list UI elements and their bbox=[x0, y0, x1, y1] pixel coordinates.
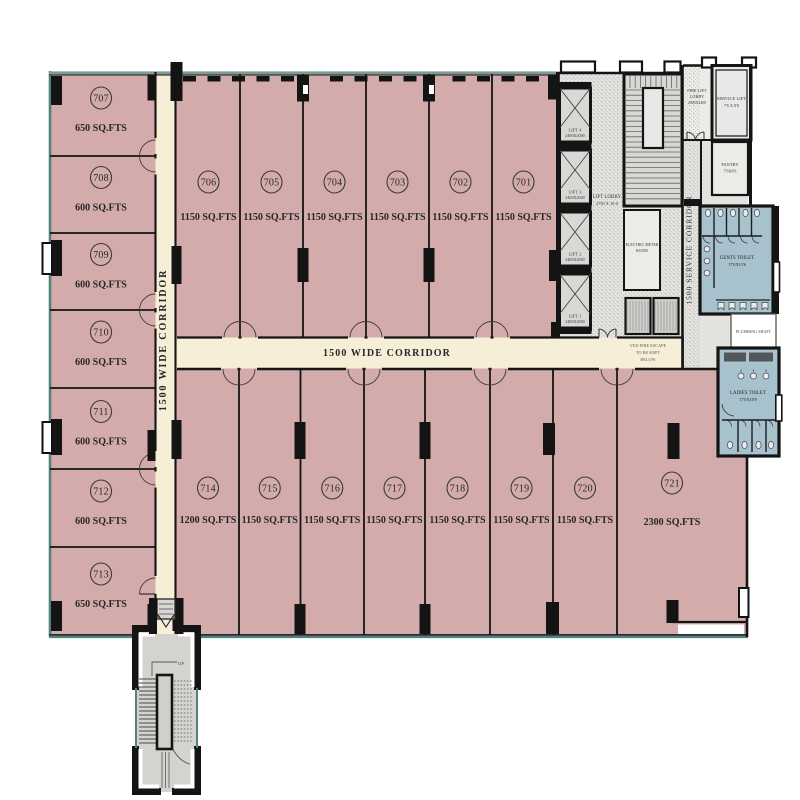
svg-text:713: 713 bbox=[93, 570, 109, 581]
svg-text:BELOW: BELOW bbox=[640, 357, 655, 362]
svg-text:706: 706 bbox=[201, 178, 217, 189]
svg-text:717: 717 bbox=[387, 484, 403, 495]
svg-text:1150 SQ.FTS: 1150 SQ.FTS bbox=[493, 515, 550, 526]
svg-text:LIFT LOBBY: LIFT LOBBY bbox=[593, 195, 622, 200]
svg-text:721: 721 bbox=[664, 479, 680, 490]
svg-text:2400X2000: 2400X2000 bbox=[565, 257, 584, 262]
svg-text:SERVICE LIFT: SERVICE LIFT bbox=[717, 96, 746, 101]
svg-text:7'6X8'6: 7'6X8'6 bbox=[724, 169, 737, 174]
svg-text:650 SQ.FTS: 650 SQ.FTS bbox=[75, 123, 127, 134]
svg-text:600 SQ.FTS: 600 SQ.FTS bbox=[75, 357, 127, 368]
svg-text:710: 710 bbox=[93, 328, 109, 339]
svg-text:LIFT 1: LIFT 1 bbox=[569, 314, 582, 319]
svg-text:718: 718 bbox=[450, 484, 466, 495]
svg-text:1150 SQ.FTS: 1150 SQ.FTS bbox=[557, 515, 614, 526]
svg-text:1150 SQ.FTS: 1150 SQ.FTS bbox=[369, 212, 426, 223]
svg-text:712: 712 bbox=[93, 487, 109, 498]
svg-text:709: 709 bbox=[93, 250, 109, 261]
svg-text:702: 702 bbox=[453, 178, 469, 189]
svg-text:711: 711 bbox=[93, 407, 108, 418]
svg-text:PANTRY: PANTRY bbox=[721, 162, 739, 167]
svg-text:UP: UP bbox=[178, 661, 184, 666]
svg-text:716: 716 bbox=[324, 484, 340, 495]
svg-text:LIFT 4: LIFT 4 bbox=[569, 128, 583, 133]
svg-text:7'6 X 8'0: 7'6 X 8'0 bbox=[724, 103, 739, 108]
svg-text:600 SQ.FTS: 600 SQ.FTS bbox=[75, 203, 127, 214]
svg-text:2750 X 10-0: 2750 X 10-0 bbox=[596, 201, 618, 206]
svg-text:719: 719 bbox=[514, 484, 530, 495]
svg-text:TO BE KEPT: TO BE KEPT bbox=[636, 350, 660, 355]
svg-text:ROOM: ROOM bbox=[636, 249, 648, 253]
svg-text:1500 WIDE CORRIDOR: 1500 WIDE CORRIDOR bbox=[323, 348, 451, 359]
svg-text:2400X2000: 2400X2000 bbox=[565, 133, 584, 138]
svg-text:17'0X13'6: 17'0X13'6 bbox=[728, 262, 746, 267]
svg-text:705: 705 bbox=[264, 178, 280, 189]
svg-text:600 SQ.FTS: 600 SQ.FTS bbox=[75, 437, 127, 448]
svg-text:714: 714 bbox=[200, 484, 216, 495]
svg-text:715: 715 bbox=[262, 484, 278, 495]
svg-text:2400X2000: 2400X2000 bbox=[565, 195, 584, 200]
svg-text:1150 SQ.FTS: 1150 SQ.FTS bbox=[306, 212, 363, 223]
svg-text:PLUMBING SHAFT: PLUMBING SHAFT bbox=[736, 329, 772, 334]
svg-text:2300 SQ.FTS: 2300 SQ.FTS bbox=[644, 517, 701, 528]
svg-text:1150 SQ.FTS: 1150 SQ.FTS bbox=[432, 212, 489, 223]
svg-text:1150 SQ.FTS: 1150 SQ.FTS bbox=[304, 515, 361, 526]
svg-text:1150 SQ.FTS: 1150 SQ.FTS bbox=[243, 212, 300, 223]
svg-text:703: 703 bbox=[390, 178, 406, 189]
svg-text:LOBBY: LOBBY bbox=[690, 94, 705, 99]
svg-text:ELECTRIC METER: ELECTRIC METER bbox=[626, 243, 659, 247]
svg-text:1150 SQ.FTS: 1150 SQ.FTS bbox=[366, 515, 423, 526]
svg-text:600 SQ.FTS: 600 SQ.FTS bbox=[75, 516, 127, 527]
svg-text:VED FIRE ESCAPE: VED FIRE ESCAPE bbox=[630, 343, 667, 348]
svg-text:707: 707 bbox=[93, 94, 109, 105]
svg-text:2400X2000: 2400X2000 bbox=[565, 319, 584, 324]
svg-text:FIRE LIFT: FIRE LIFT bbox=[687, 88, 707, 93]
svg-text:708: 708 bbox=[93, 173, 109, 184]
svg-text:LIFT 3: LIFT 3 bbox=[569, 190, 583, 195]
svg-text:GENTS TOILET: GENTS TOILET bbox=[720, 256, 754, 261]
svg-text:17'0X10'0: 17'0X10'0 bbox=[739, 397, 757, 402]
svg-text:LIFT 2: LIFT 2 bbox=[569, 252, 582, 257]
svg-text:650 SQ.FTS: 650 SQ.FTS bbox=[75, 599, 127, 610]
svg-text:701: 701 bbox=[516, 178, 532, 189]
svg-text:1150 SQ.FTS: 1150 SQ.FTS bbox=[429, 515, 486, 526]
svg-text:2000X2400: 2000X2400 bbox=[688, 101, 707, 105]
svg-text:720: 720 bbox=[577, 484, 593, 495]
svg-text:1150 SQ.FTS: 1150 SQ.FTS bbox=[242, 515, 299, 526]
svg-text:1500 WIDE CORRIDOR: 1500 WIDE CORRIDOR bbox=[158, 269, 169, 412]
svg-text:1150 SQ.FTS: 1150 SQ.FTS bbox=[180, 212, 237, 223]
svg-text:704: 704 bbox=[327, 178, 343, 189]
svg-text:1500 SERVICE CORRIDOR: 1500 SERVICE CORRIDOR bbox=[685, 195, 694, 304]
svg-text:1200 SQ.FTS: 1200 SQ.FTS bbox=[180, 515, 237, 526]
svg-text:1150 SQ.FTS: 1150 SQ.FTS bbox=[495, 212, 552, 223]
svg-text:LADIES TOILET: LADIES TOILET bbox=[730, 391, 766, 396]
svg-text:600 SQ.FTS: 600 SQ.FTS bbox=[75, 280, 127, 291]
